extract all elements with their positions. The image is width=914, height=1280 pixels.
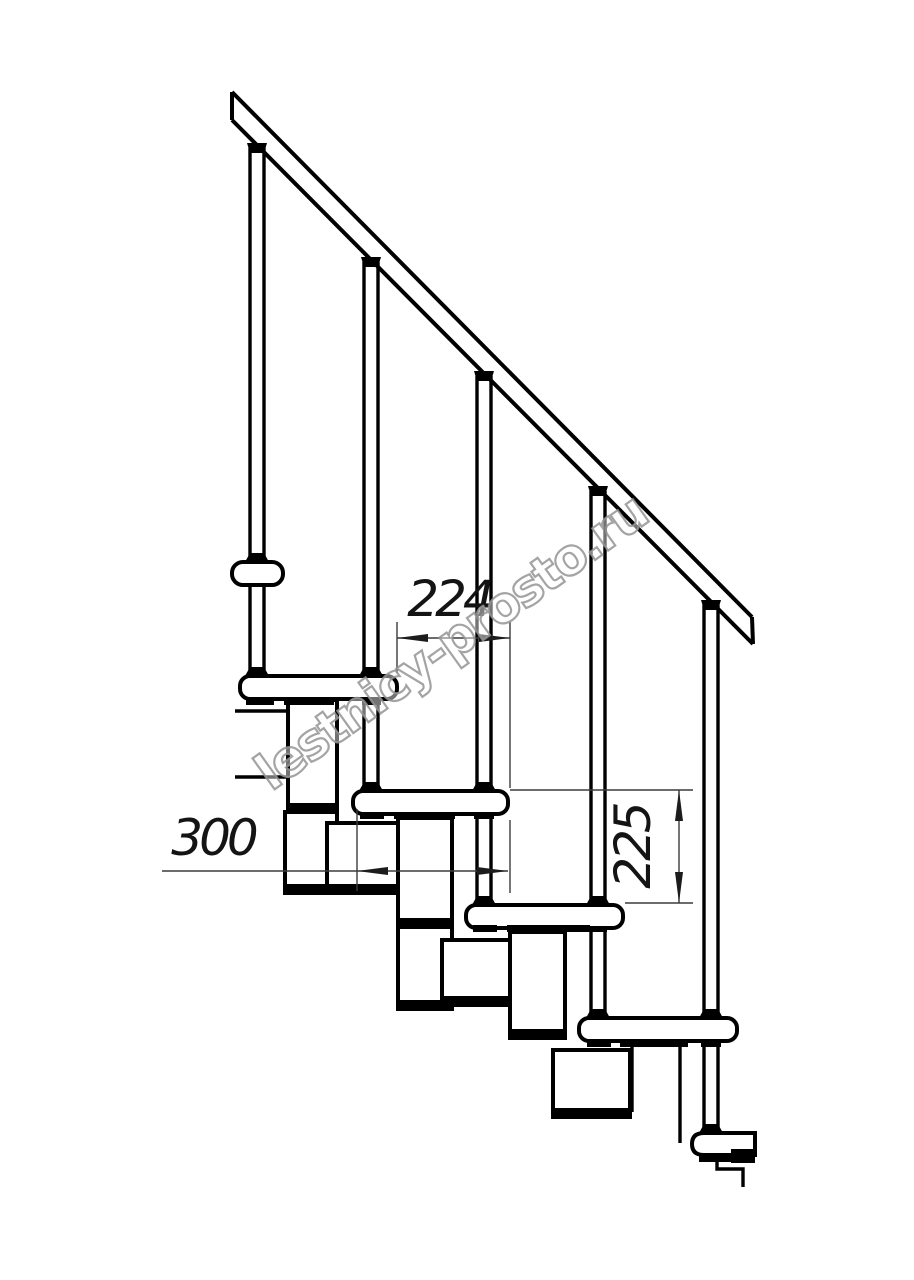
dimension-225: 225 xyxy=(510,790,693,903)
dimension-label-300: 300 xyxy=(171,809,257,867)
dimension-label-225: 225 xyxy=(604,803,662,889)
baluster-1 xyxy=(250,148,264,670)
module-box xyxy=(510,932,565,1038)
baluster-cap-icon xyxy=(361,257,381,267)
module-box xyxy=(327,823,403,893)
baluster-cap-icon xyxy=(247,143,267,153)
module-box xyxy=(398,818,452,927)
baluster-cap-icon xyxy=(701,600,721,610)
baluster-cap-icon xyxy=(474,371,494,381)
module-box-open xyxy=(632,1047,680,1143)
module-box xyxy=(442,940,517,1005)
staircase-drawing-page: 224 300 225 lestnicy-prosto.ru xyxy=(0,0,914,1280)
tread-2 xyxy=(353,791,508,814)
baluster-cap-icon xyxy=(588,486,608,496)
watermark-text: lestnicy-prosto.ru xyxy=(244,483,657,802)
module-box xyxy=(553,1050,630,1117)
staircase-side-view-drawing: 224 300 225 lestnicy-prosto.ru xyxy=(0,0,914,1280)
tread-3 xyxy=(466,905,623,928)
bottom-bracket xyxy=(717,1162,743,1187)
baluster-5 xyxy=(704,605,718,1128)
tread-4 xyxy=(579,1018,737,1041)
rail-cross-section xyxy=(232,562,283,585)
